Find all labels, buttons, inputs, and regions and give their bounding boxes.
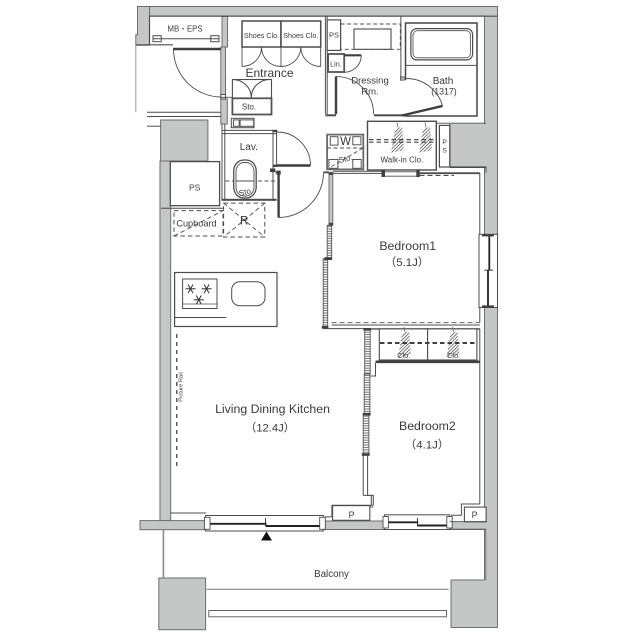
svg-text:Dressing: Dressing: [351, 76, 389, 87]
svg-text:R: R: [240, 216, 248, 228]
svg-text:（12.4J）: （12.4J）: [245, 422, 295, 435]
svg-text:Rm.: Rm.: [361, 87, 378, 98]
svg-text:PS: PS: [329, 31, 339, 40]
svg-text:Walk-in Clo.: Walk-in Clo.: [380, 156, 423, 165]
svg-text:Entrance: Entrance: [245, 66, 293, 80]
svg-text:（5.1J）: （5.1J）: [385, 256, 429, 269]
svg-text:PS: PS: [189, 183, 201, 193]
svg-text:P: P: [472, 510, 478, 520]
svg-text:P: P: [442, 139, 447, 146]
svg-text:Shoes Clo.: Shoes Clo.: [244, 31, 279, 40]
svg-text:MB・EPS: MB・EPS: [167, 24, 202, 33]
svg-text:（4.1J）: （4.1J）: [405, 439, 449, 452]
svg-text:Cupboard: Cupboard: [176, 218, 216, 228]
svg-text:Bedroom2: Bedroom2: [399, 419, 456, 433]
svg-text:Bedroom1: Bedroom1: [379, 239, 436, 253]
svg-text:P: P: [349, 510, 355, 520]
svg-text:Lin.: Lin.: [330, 60, 342, 69]
svg-text:Living Dining Kitchen: Living Dining Kitchen: [215, 402, 330, 416]
svg-text:Balcony: Balcony: [314, 569, 349, 580]
svg-text:Lav.: Lav.: [240, 142, 258, 153]
svg-text:Clo.: Clo.: [447, 351, 460, 360]
svg-text:W: W: [340, 136, 351, 148]
svg-text:Picture Rail: Picture Rail: [179, 372, 185, 402]
svg-text:Sto.: Sto.: [242, 103, 256, 112]
svg-text:Shoes Clo.: Shoes Clo.: [283, 31, 318, 40]
svg-text:S: S: [442, 148, 447, 155]
svg-text:Clo.: Clo.: [397, 351, 410, 360]
svg-text:Bath: Bath: [433, 76, 454, 87]
